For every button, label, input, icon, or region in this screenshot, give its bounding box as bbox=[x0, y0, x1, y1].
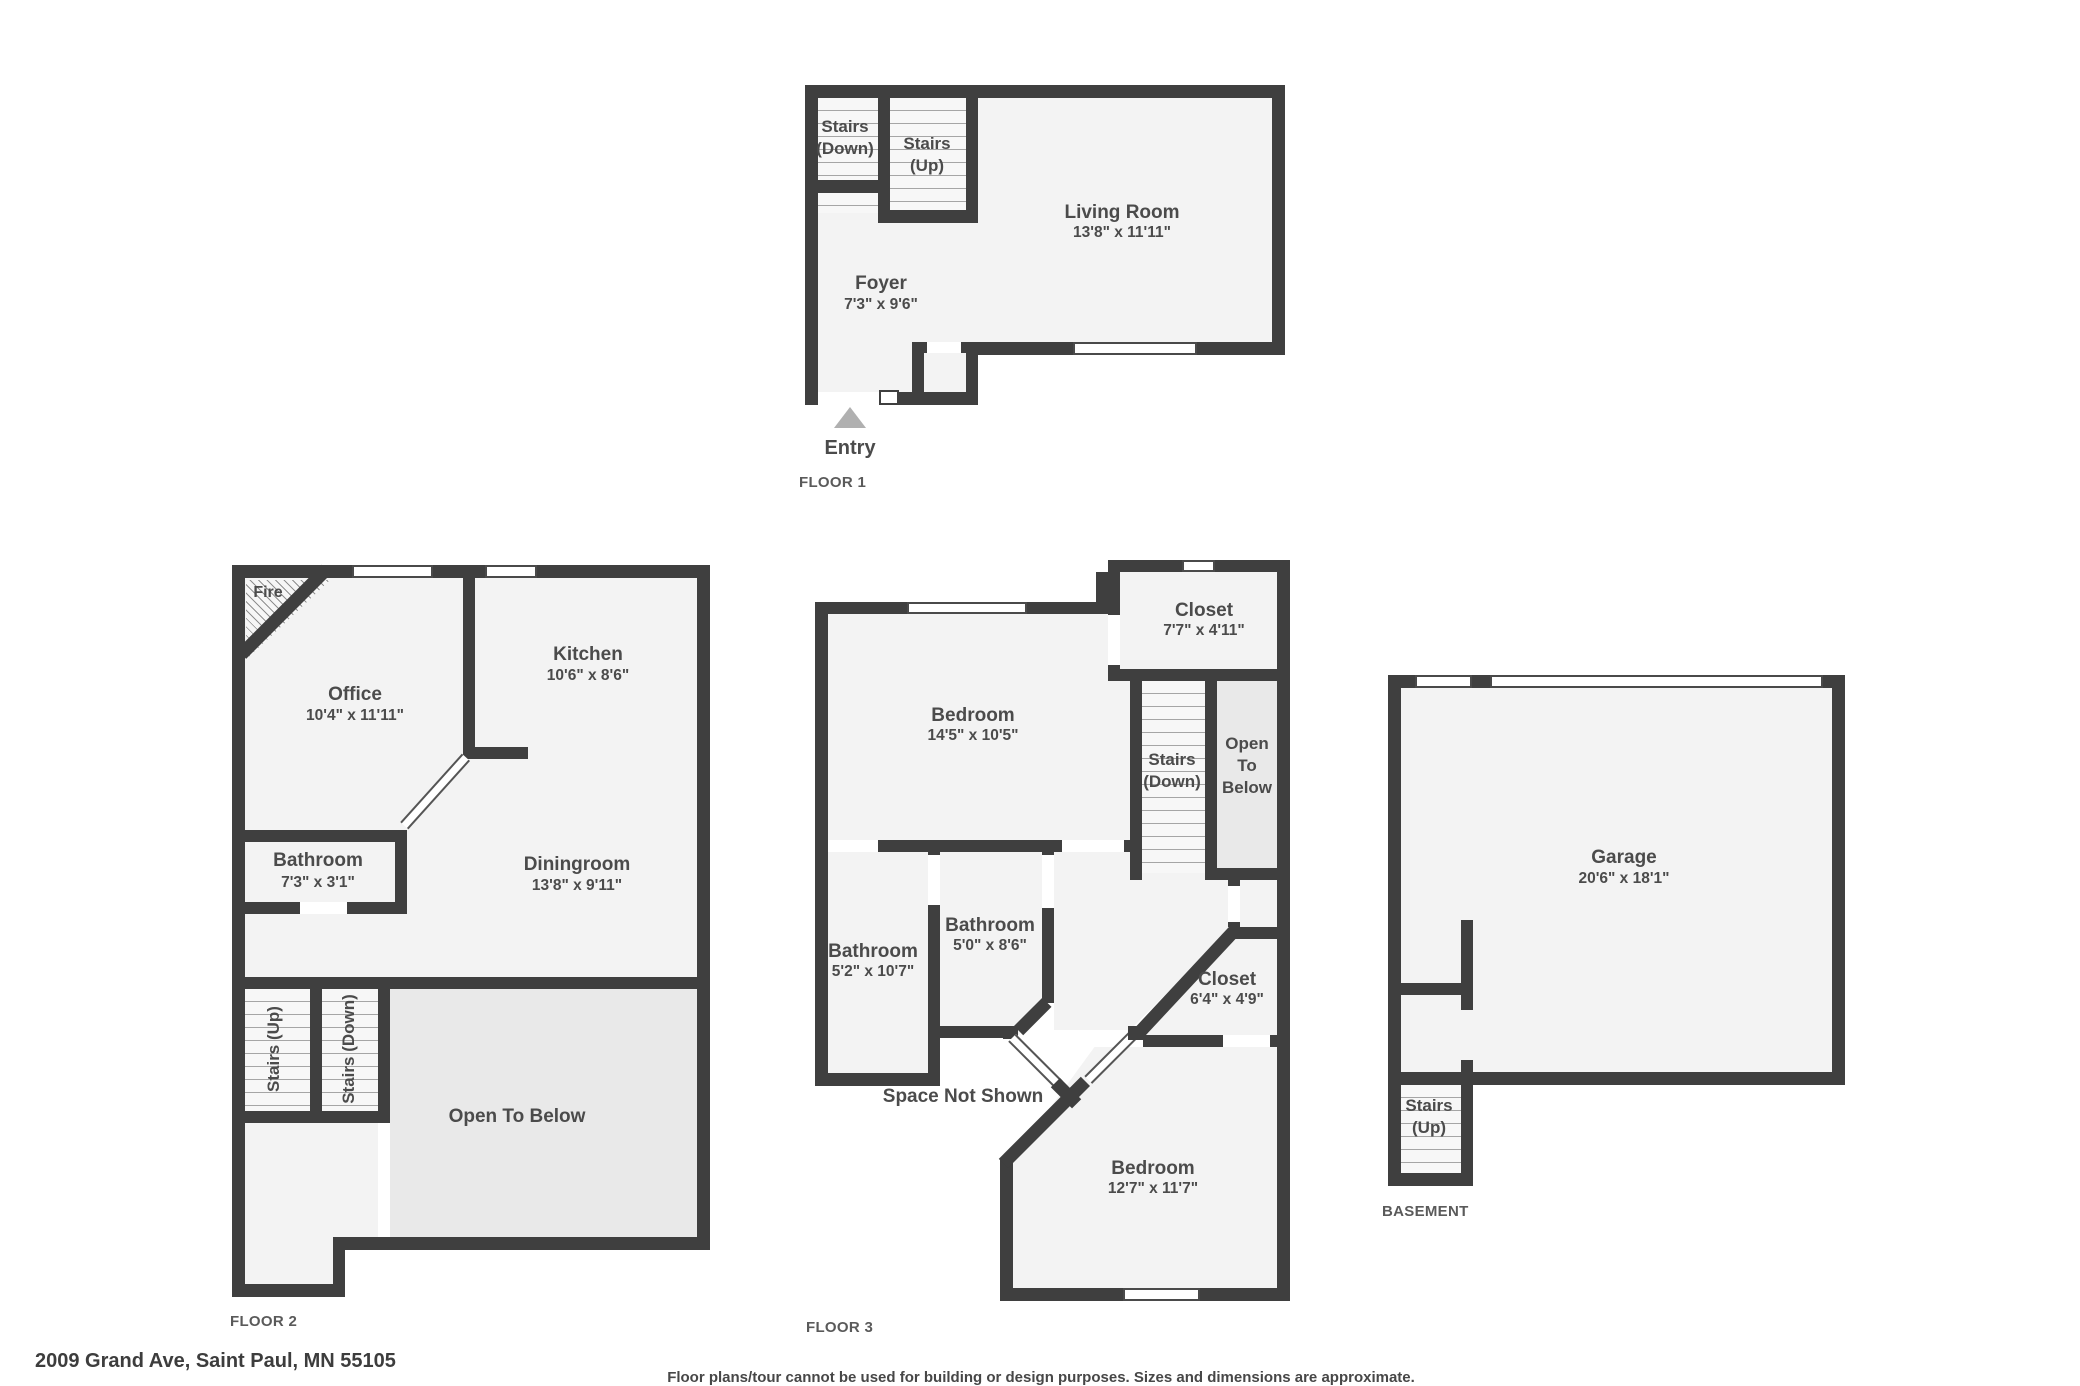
wall bbox=[1000, 1160, 1013, 1300]
stairs-up-label: (Up) bbox=[910, 156, 944, 176]
stairs-up-treads bbox=[890, 98, 966, 210]
entry-door-opening bbox=[818, 392, 880, 405]
wall bbox=[232, 1284, 345, 1297]
wall bbox=[966, 342, 978, 405]
window bbox=[1415, 675, 1472, 688]
wall bbox=[818, 180, 890, 193]
wall bbox=[232, 830, 407, 842]
room-label-bathroom-mid: Bathroom bbox=[945, 915, 1035, 937]
wall bbox=[1388, 1173, 1473, 1186]
wall bbox=[815, 1073, 940, 1086]
room-label-living: Living Room bbox=[1064, 202, 1179, 224]
room-floor bbox=[1130, 873, 1228, 927]
fireplace-label: Fire bbox=[253, 584, 282, 602]
window bbox=[1182, 560, 1215, 572]
door-opening bbox=[1223, 1035, 1270, 1047]
window bbox=[1073, 342, 1197, 355]
room-dims-bedroom-bottom: 12'7" x 11'7" bbox=[1108, 1180, 1198, 1198]
open-to-below-label: Below bbox=[1222, 778, 1272, 798]
stairs-landing-treads bbox=[818, 193, 878, 213]
wall bbox=[1272, 85, 1285, 355]
wall bbox=[463, 565, 475, 747]
wall bbox=[310, 977, 322, 1123]
stairs-down-label: Stairs bbox=[1148, 750, 1195, 770]
room-floor bbox=[818, 342, 912, 392]
wall bbox=[1388, 1072, 1468, 1085]
basement-label: BASEMENT bbox=[1382, 1203, 1469, 1220]
room-dims-bathroom: 7'3" x 3'1" bbox=[281, 874, 355, 892]
room-label-bedroom-bottom: Bedroom bbox=[1111, 1158, 1194, 1180]
closet-door-opening bbox=[927, 342, 961, 353]
room-dims-dining: 13'8" x 9'11" bbox=[532, 877, 622, 895]
room-label-office: Office bbox=[328, 684, 382, 706]
room-label-closet-right: Closet bbox=[1198, 969, 1256, 991]
open-to-below-label: Open bbox=[1225, 734, 1268, 754]
room-label-foyer: Foyer bbox=[855, 273, 907, 295]
floor2-label: FLOOR 2 bbox=[230, 1313, 297, 1330]
space-not-shown-label: Space Not Shown bbox=[883, 1086, 1043, 1108]
door-opening bbox=[1062, 840, 1124, 852]
room-label-dining: Diningroom bbox=[524, 854, 631, 876]
door-opening bbox=[300, 902, 347, 914]
wall bbox=[805, 85, 1285, 98]
wall bbox=[1461, 920, 1473, 1010]
wall bbox=[878, 210, 977, 223]
room-dims-foyer: 7'3" x 9'6" bbox=[844, 296, 918, 314]
room-dims-bedroom-top: 14'5" x 10'5" bbox=[927, 727, 1018, 745]
floor3-label: FLOOR 3 bbox=[806, 1319, 873, 1336]
stairs-down-label: Stairs bbox=[821, 117, 868, 137]
wall bbox=[966, 98, 978, 223]
room-dims-living: 13'8" x 11'11" bbox=[1073, 224, 1171, 242]
wall bbox=[232, 1111, 390, 1123]
wall bbox=[1205, 868, 1290, 880]
open-to-below-label: To bbox=[1237, 756, 1257, 776]
window bbox=[907, 602, 1027, 614]
room-dims-closet-top: 7'7" x 4'11" bbox=[1163, 622, 1245, 640]
disclaimer-text: Floor plans/tour cannot be used for buil… bbox=[667, 1369, 1415, 1386]
wall bbox=[378, 977, 390, 1123]
door-leaf bbox=[879, 390, 899, 405]
stairs-down-label: (Down) bbox=[1143, 772, 1201, 792]
stairs-up-label: (Up) bbox=[1412, 1118, 1446, 1138]
stairs-up-label: Stairs (Up) bbox=[264, 1006, 284, 1092]
room-label-closet-top: Closet bbox=[1175, 600, 1233, 622]
open-to-below-label: Open To Below bbox=[449, 1106, 586, 1128]
wall bbox=[1130, 681, 1142, 880]
wall bbox=[232, 565, 245, 1297]
wall bbox=[1233, 927, 1277, 939]
wall bbox=[1277, 560, 1290, 1301]
entry-arrow-icon bbox=[834, 407, 866, 428]
wall bbox=[378, 977, 697, 989]
wall bbox=[1205, 681, 1217, 880]
window bbox=[1490, 675, 1823, 688]
entry-label: Entry bbox=[824, 437, 875, 460]
room-label-kitchen: Kitchen bbox=[553, 644, 623, 666]
wall bbox=[1108, 669, 1290, 681]
door-opening bbox=[928, 855, 940, 905]
room-dims-closet-right: 6'4" x 4'9" bbox=[1190, 991, 1264, 1009]
room-floor bbox=[245, 1237, 333, 1284]
room-dims-garage: 20'6" x 18'1" bbox=[1578, 870, 1669, 888]
room-label-bathroom-left: Bathroom bbox=[828, 941, 918, 963]
room-label-bathroom: Bathroom bbox=[273, 850, 363, 872]
wall-stub bbox=[1128, 1026, 1146, 1040]
wall bbox=[463, 747, 528, 759]
stairs-up-label: Stairs bbox=[1405, 1096, 1452, 1116]
floor1-label: FLOOR 1 bbox=[799, 474, 866, 491]
stairs-down-label: Stairs (Down) bbox=[339, 994, 359, 1104]
wall bbox=[1388, 675, 1401, 1186]
wall bbox=[1388, 983, 1461, 995]
window bbox=[1123, 1288, 1200, 1301]
window bbox=[352, 565, 433, 578]
room-dims-bathroom-mid: 5'0" x 8'6" bbox=[953, 937, 1027, 955]
room-floor bbox=[924, 353, 966, 392]
door-opening bbox=[1228, 886, 1240, 922]
room-dims-kitchen: 10'6" x 8'6" bbox=[547, 667, 629, 685]
door-opening bbox=[1042, 855, 1054, 908]
room-dims-office: 10'4" x 11'11" bbox=[306, 707, 404, 725]
room-floor bbox=[1054, 852, 1130, 1030]
door-opening-diagonal bbox=[1008, 1034, 1062, 1088]
door-opening bbox=[1108, 615, 1120, 665]
wall bbox=[805, 85, 818, 405]
wall bbox=[1832, 675, 1845, 1085]
wall bbox=[1096, 572, 1108, 614]
room-dims-bathroom-left: 5'2" x 10'7" bbox=[832, 963, 914, 981]
wall bbox=[697, 565, 710, 1250]
room-label-garage: Garage bbox=[1591, 847, 1656, 869]
room-label-bedroom-top: Bedroom bbox=[931, 705, 1014, 727]
stairs-down-label: (Down) bbox=[816, 139, 874, 159]
window bbox=[485, 565, 537, 578]
stairs-up-label: Stairs bbox=[903, 134, 950, 154]
wall bbox=[333, 1237, 710, 1250]
property-address: 2009 Grand Ave, Saint Paul, MN 55105 bbox=[35, 1350, 396, 1373]
door-opening bbox=[828, 840, 878, 852]
wall bbox=[1467, 1072, 1845, 1085]
